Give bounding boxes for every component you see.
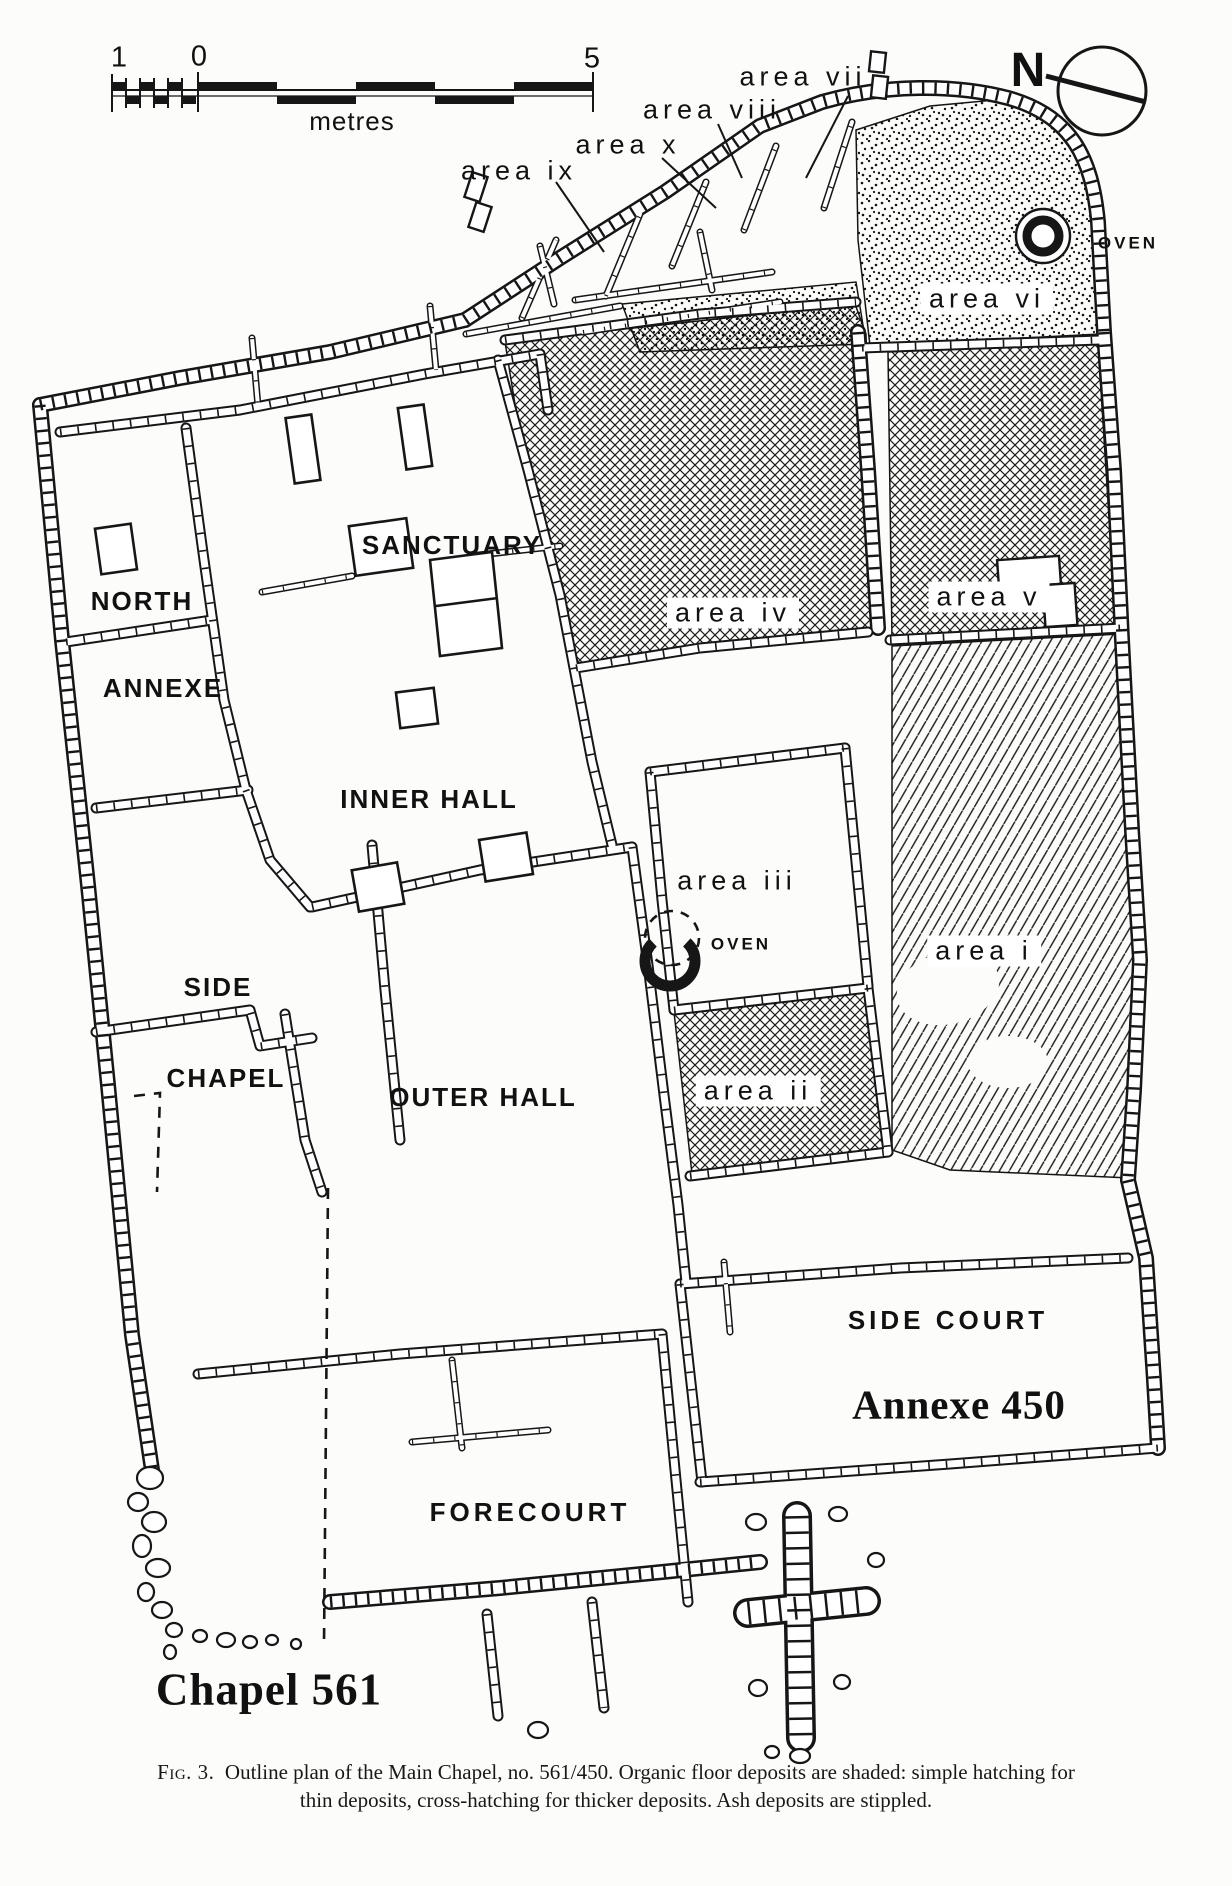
figure-caption: Fig. 3. Outline plan of the Main Chapel,… <box>0 1758 1232 1815</box>
caption-line-1-text: Outline plan of the Main Chapel, no. 561… <box>225 1760 1075 1784</box>
annexe-block <box>95 524 137 575</box>
label-side: SIDE <box>184 974 253 1000</box>
label-annexe: ANNEXE <box>103 675 223 701</box>
label-annexe-450: Annexe 450 <box>852 1385 1066 1426</box>
label-area-vi: area vi <box>921 284 1053 315</box>
label-chapel-561: Chapel 561 <box>156 1668 382 1713</box>
label-area-ii: area ii <box>696 1076 821 1107</box>
label-sanctuary: SANCTUARY <box>362 532 542 558</box>
label-inner-hall: INNER HALL <box>340 786 517 812</box>
label-chapel: CHAPEL <box>167 1065 286 1091</box>
label-forecourt: FORECOURT <box>430 1499 631 1525</box>
label-side-court: SIDE COURT <box>848 1307 1048 1333</box>
scale-label-5: 5 <box>584 45 600 74</box>
pilaster <box>286 415 321 484</box>
label-area-vii: area vii <box>739 64 866 91</box>
dashed-chapel-line <box>134 1093 160 1192</box>
compass-north-label: N <box>1011 47 1046 95</box>
pilaster <box>398 404 432 469</box>
dashed-wall-line <box>324 1188 328 1645</box>
label-north: NORTH <box>91 588 193 614</box>
caption-fig-label: Fig. 3. <box>157 1760 214 1784</box>
compass-needle <box>1046 76 1146 102</box>
scale-label-1: 1 <box>111 44 127 73</box>
label-area-v: area v <box>928 582 1049 613</box>
oven-top <box>1027 220 1059 252</box>
label-area-iv: area iv <box>667 598 799 629</box>
deposit-area-i <box>892 634 1138 1178</box>
caption-line-2: thin deposits, cross-hatching for thicke… <box>0 1786 1232 1814</box>
label-area-i: area i <box>927 936 1041 967</box>
altar-base <box>430 552 502 656</box>
label-oven-middle: OVEN <box>711 936 771 953</box>
pilaster <box>479 833 533 882</box>
caption-line-1: Fig. 3. Outline plan of the Main Chapel,… <box>0 1758 1232 1786</box>
label-area-x: area x <box>575 132 680 159</box>
label-area-iii: area iii <box>677 868 797 895</box>
label-outer-hall: OUTER HALL <box>389 1084 577 1110</box>
sanctuary-feature <box>396 688 438 728</box>
scale-label-0: 0 <box>191 43 207 72</box>
label-oven-top: OVEN <box>1098 235 1158 252</box>
label-area-ix: area ix <box>461 158 577 185</box>
scale-unit-label: metres <box>309 108 394 134</box>
pilaster <box>352 862 405 911</box>
figure-page: 1 0 5 metres area vii area viii area x a… <box>0 0 1232 1886</box>
label-area-viii: area viii <box>643 97 781 124</box>
